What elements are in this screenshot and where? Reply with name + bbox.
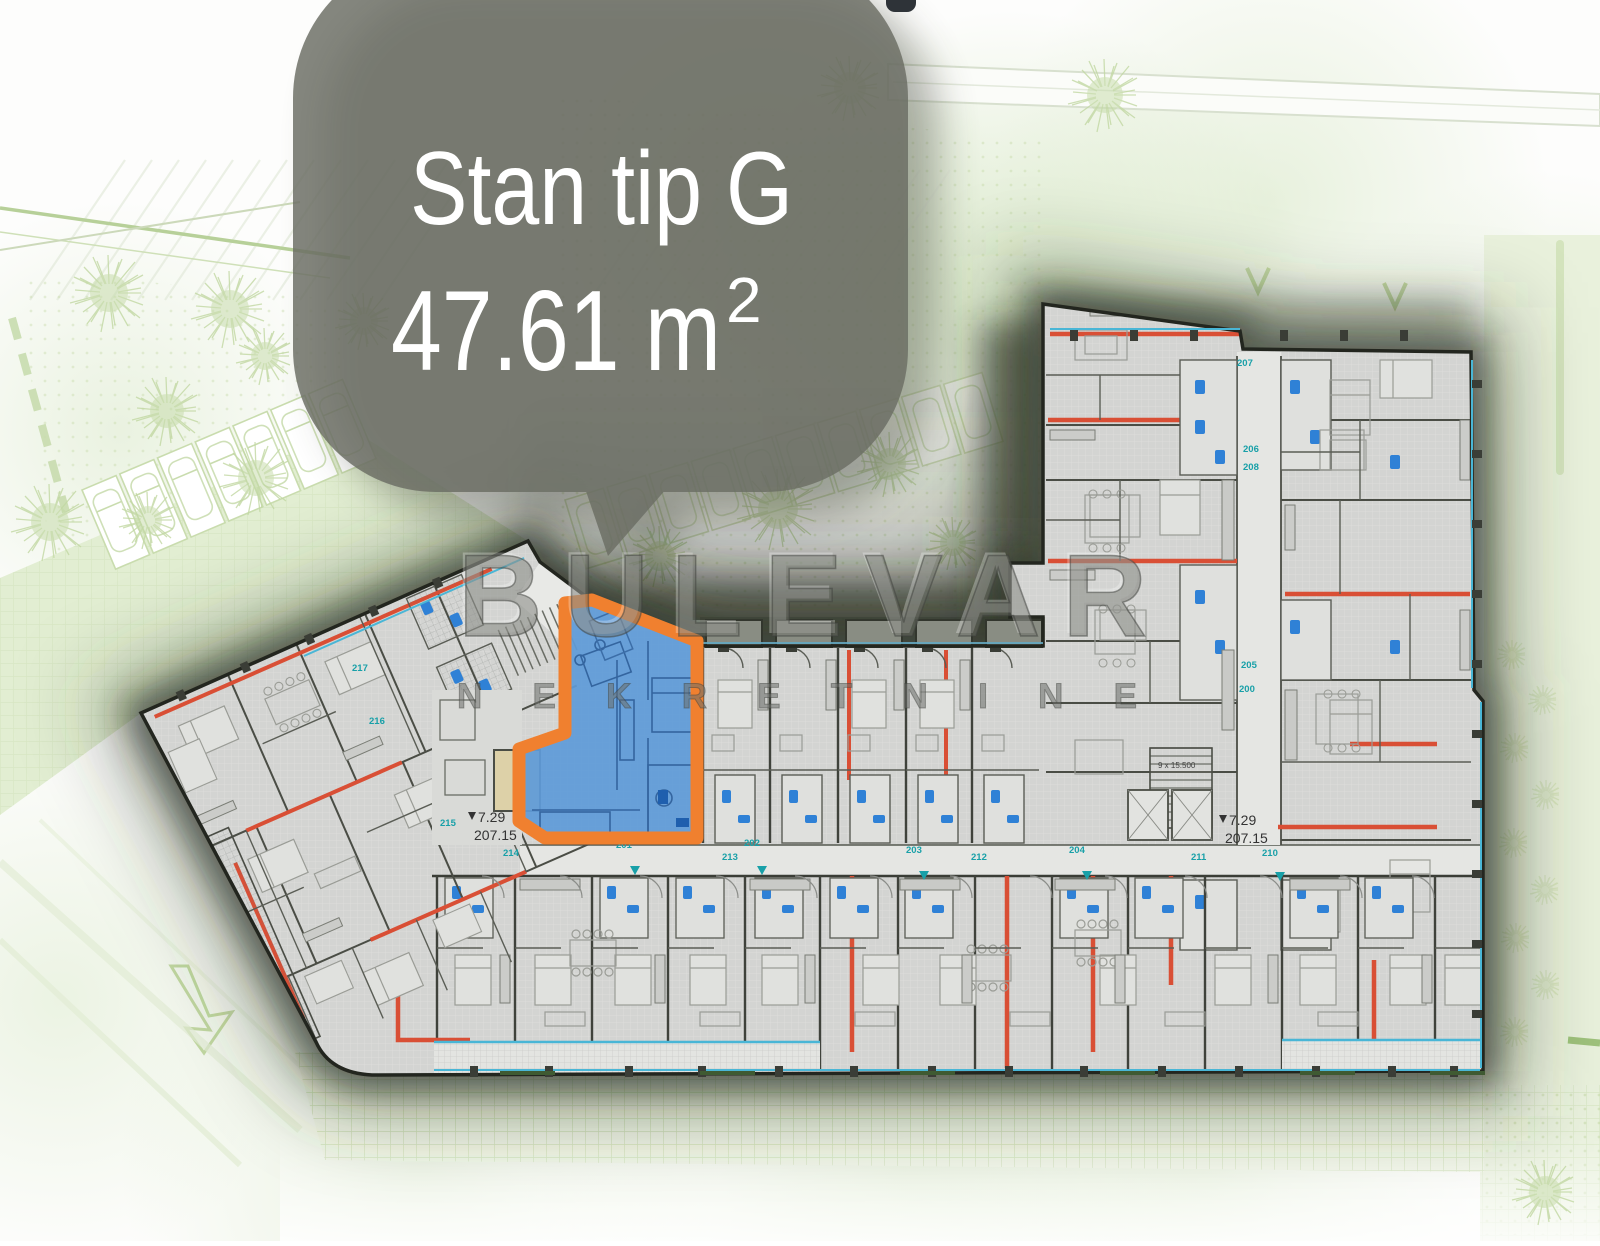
svg-text:216: 216 [369, 716, 385, 727]
svg-text:207: 207 [1237, 358, 1253, 369]
svg-text:217: 217 [352, 663, 368, 674]
svg-text:213: 213 [722, 852, 738, 863]
svg-text:7.29: 7.29 [478, 809, 505, 825]
svg-text:206: 206 [1243, 444, 1259, 455]
svg-text:212: 212 [971, 852, 987, 863]
svg-text:7.29: 7.29 [1229, 812, 1256, 828]
svg-text:9 x 15.500: 9 x 15.500 [1158, 761, 1196, 770]
svg-text:207.15: 207.15 [1225, 830, 1268, 846]
svg-text:210: 210 [1262, 848, 1278, 859]
svg-text:214: 214 [503, 848, 520, 859]
svg-text:2: 2 [726, 264, 762, 336]
svg-text:202: 202 [744, 838, 760, 849]
svg-text:204: 204 [1069, 845, 1086, 856]
svg-text:205: 205 [1241, 660, 1258, 671]
svg-text:47.61 m: 47.61 m [391, 268, 721, 395]
svg-text:215: 215 [440, 818, 457, 829]
svg-text:211: 211 [1191, 852, 1207, 863]
svg-text:208: 208 [1243, 462, 1259, 473]
svg-text:200: 200 [1239, 684, 1255, 695]
svg-text:207.15: 207.15 [474, 827, 517, 843]
svg-text:Stan tip G: Stan tip G [410, 131, 793, 247]
svg-text:203: 203 [906, 845, 922, 856]
